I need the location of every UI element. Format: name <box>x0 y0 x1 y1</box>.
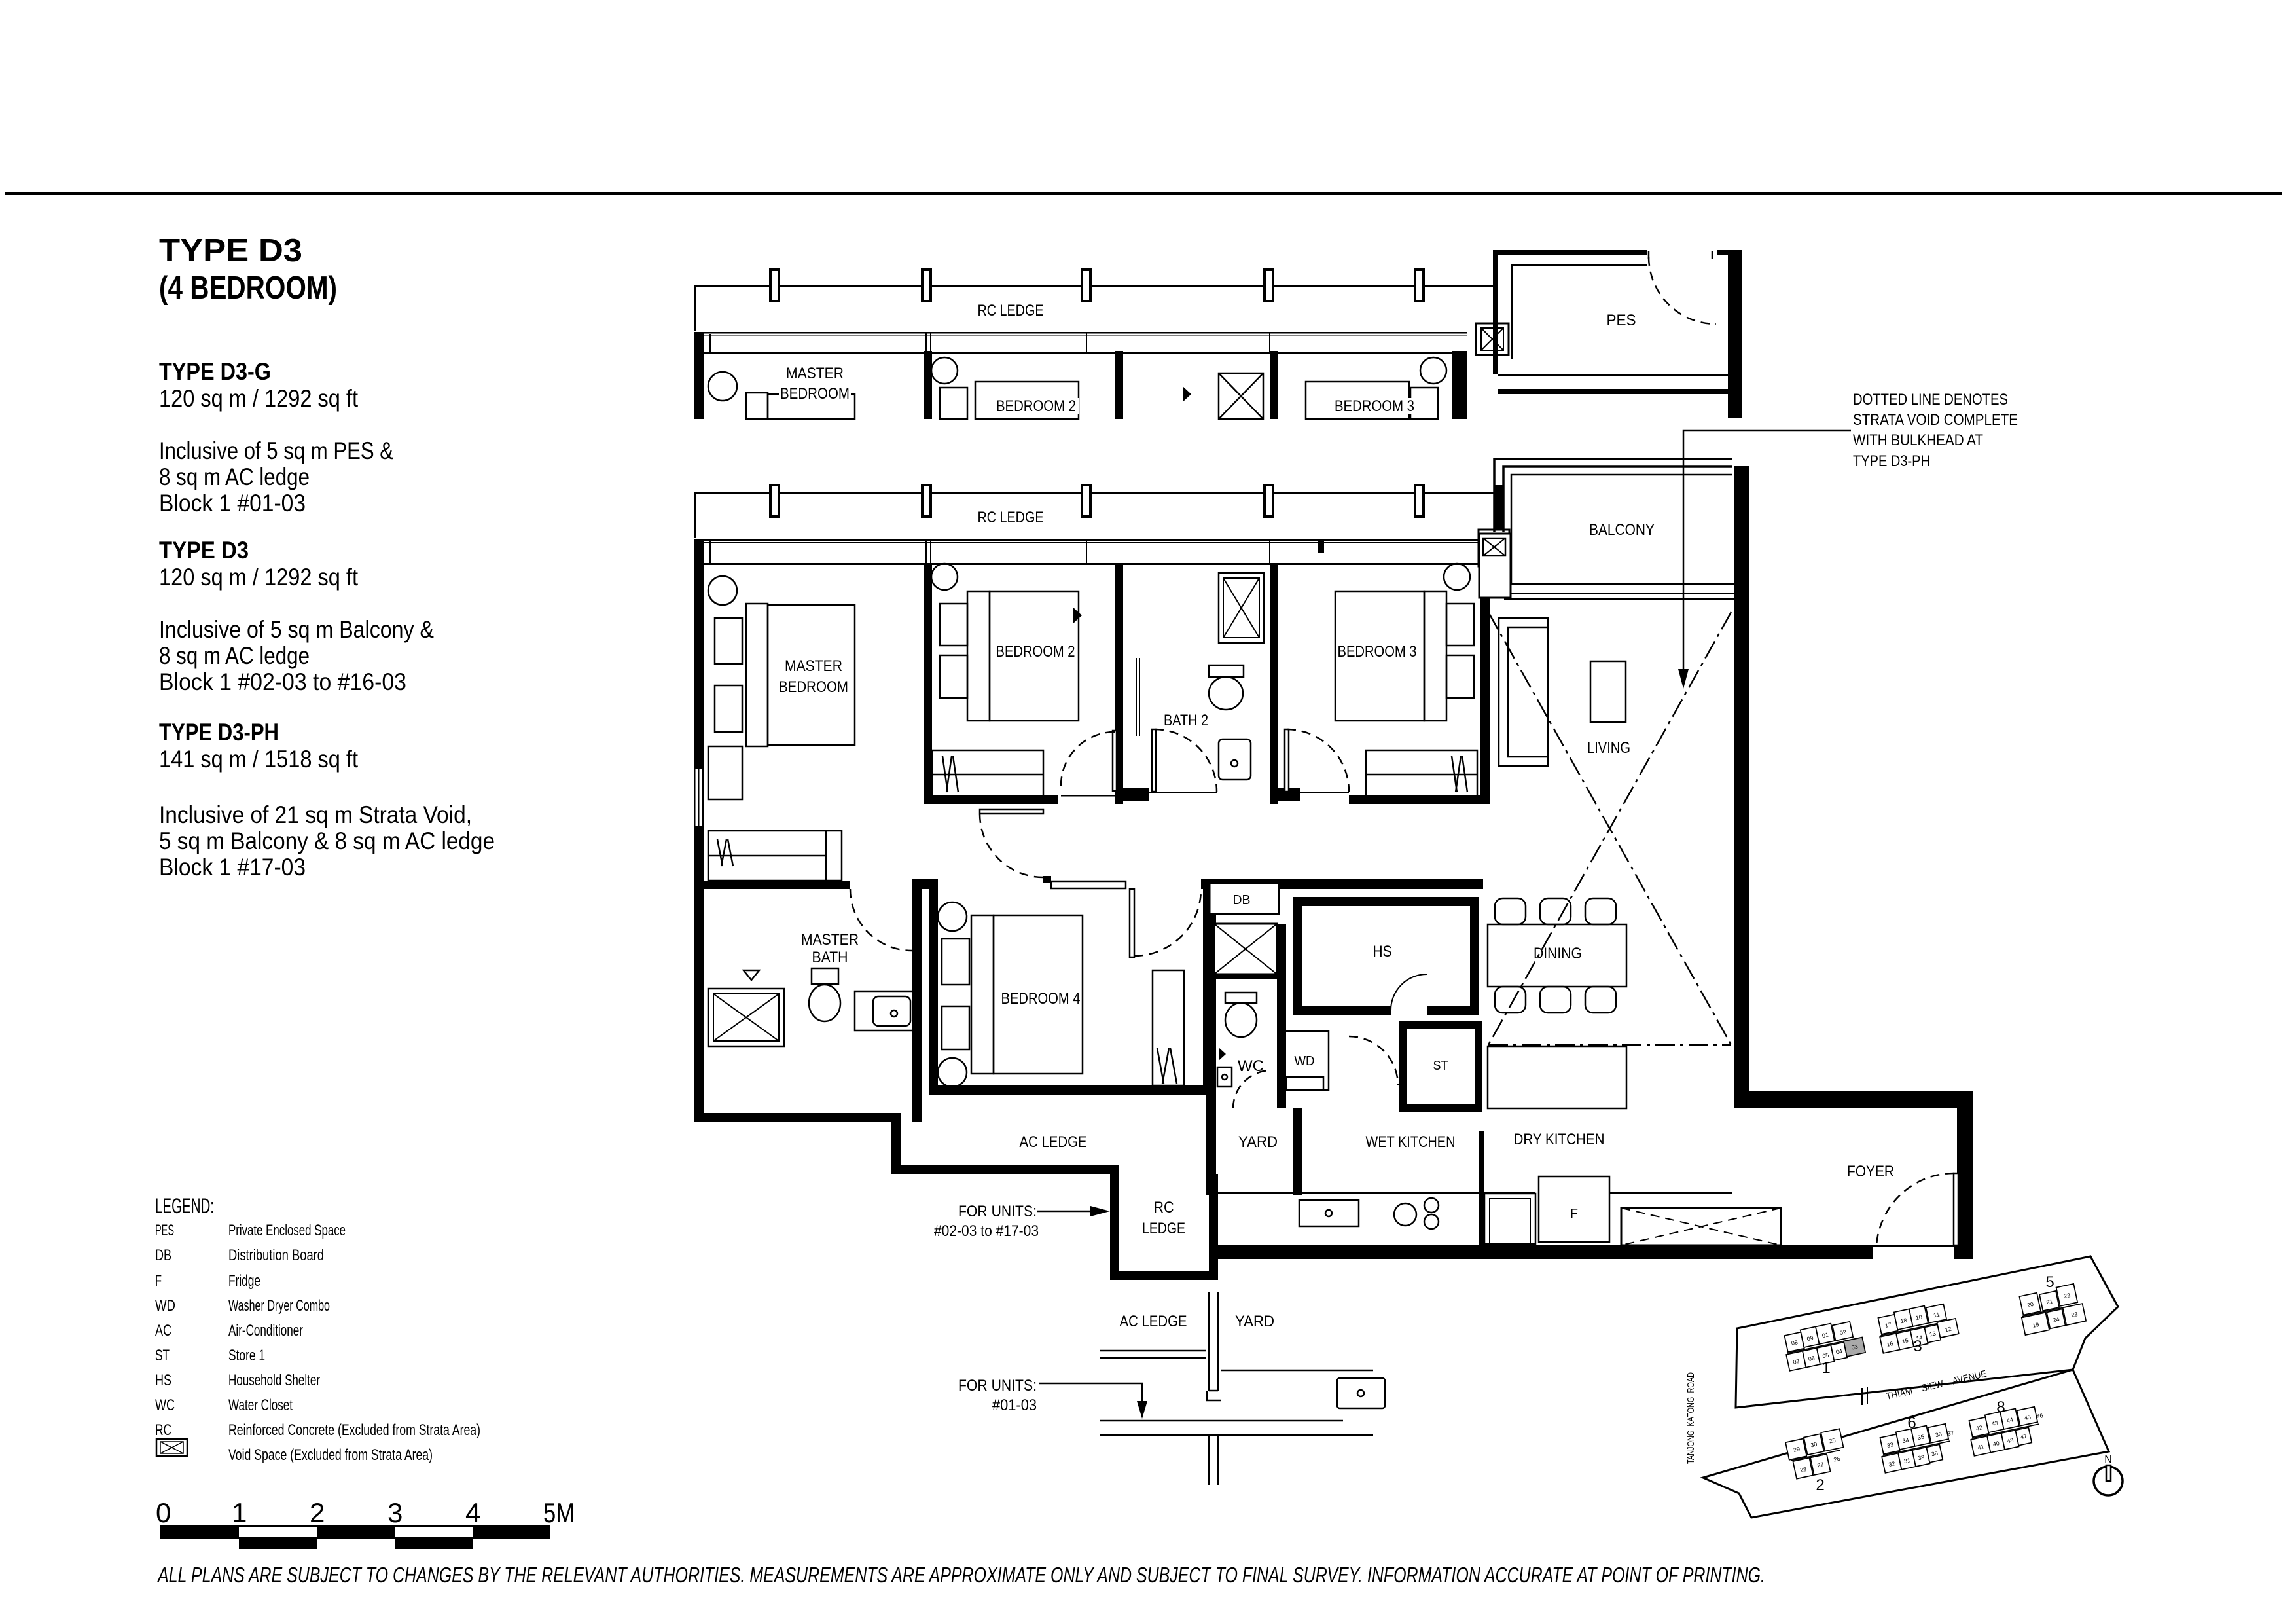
svg-text:12: 12 <box>1945 1326 1952 1334</box>
svg-text:25: 25 <box>1829 1437 1837 1445</box>
svg-text:06: 06 <box>1808 1355 1816 1362</box>
svg-text:#02-03 to #17-03: #02-03 to #17-03 <box>934 1222 1039 1240</box>
svg-text:48: 48 <box>2007 1437 2015 1445</box>
svg-text:Inclusive of 5 sq m PES &: Inclusive of 5 sq m PES & <box>159 437 393 464</box>
svg-text:43: 43 <box>1991 1419 1999 1427</box>
svg-text:STRATA VOID COMPLETE: STRATA VOID COMPLETE <box>1853 411 2018 429</box>
svg-text:RC LEDGE: RC LEDGE <box>978 302 1044 319</box>
svg-text:WD: WD <box>155 1297 175 1315</box>
svg-text:17: 17 <box>1884 1321 1892 1329</box>
svg-text:MASTER: MASTER <box>785 657 842 675</box>
svg-text:DB: DB <box>1233 893 1251 907</box>
svg-text:Private Enclosed Space: Private Enclosed Space <box>228 1222 346 1239</box>
svg-text:WD: WD <box>1295 1054 1315 1068</box>
svg-text:MASTER: MASTER <box>801 931 859 949</box>
svg-text:21: 21 <box>2046 1298 2054 1305</box>
svg-text:24: 24 <box>2053 1316 2060 1324</box>
svg-text:TYPE D3-G: TYPE D3-G <box>159 358 271 385</box>
svg-text:BEDROOM 2: BEDROOM 2 <box>996 643 1075 661</box>
svg-text:37: 37 <box>1947 1429 1955 1437</box>
svg-text:09: 09 <box>1806 1334 1814 1342</box>
svg-text:03: 03 <box>1851 1343 1859 1351</box>
svg-text:BATH: BATH <box>812 949 848 966</box>
svg-text:DINING: DINING <box>1534 945 1582 962</box>
svg-text:46: 46 <box>2036 1412 2044 1420</box>
svg-text:FOR UNITS:: FOR UNITS: <box>958 1203 1037 1220</box>
svg-text:45: 45 <box>2024 1413 2032 1421</box>
svg-text:44: 44 <box>2006 1416 2014 1424</box>
svg-text:15: 15 <box>1901 1337 1909 1345</box>
svg-text:RC: RC <box>155 1421 171 1439</box>
svg-text:8 sq m AC ledge: 8 sq m AC ledge <box>159 642 310 669</box>
svg-text:33: 33 <box>1886 1441 1894 1449</box>
svg-text:FOYER: FOYER <box>1847 1163 1894 1180</box>
svg-text:(4 BEDROOM): (4 BEDROOM) <box>159 270 337 306</box>
svg-text:ALL PLANS ARE SUBJECT TO CHANG: ALL PLANS ARE SUBJECT TO CHANGES BY THE … <box>156 1563 1765 1587</box>
svg-text:HS: HS <box>1373 943 1392 960</box>
svg-text:TYPE D3-PH: TYPE D3-PH <box>1853 452 1930 470</box>
svg-text:18: 18 <box>1900 1317 1908 1324</box>
svg-text:BEDROOM: BEDROOM <box>780 385 850 403</box>
svg-text:22: 22 <box>2063 1292 2071 1300</box>
svg-text:MASTER: MASTER <box>786 365 844 382</box>
svg-text:3: 3 <box>1913 1338 1922 1355</box>
svg-text:30: 30 <box>1810 1441 1818 1449</box>
svg-text:40: 40 <box>1992 1440 2000 1448</box>
svg-text:6: 6 <box>1907 1414 1916 1432</box>
svg-text:34: 34 <box>1902 1436 1910 1444</box>
svg-text:Block 1 #01-03: Block 1 #01-03 <box>159 490 306 517</box>
svg-text:BEDROOM 4: BEDROOM 4 <box>1001 990 1081 1008</box>
svg-text:Fridge: Fridge <box>228 1272 260 1290</box>
svg-text:120 sq m / 1292 sq ft: 120 sq m / 1292 sq ft <box>159 385 359 412</box>
svg-text:Distribution Board: Distribution Board <box>228 1247 324 1264</box>
svg-text:BALCONY: BALCONY <box>1589 521 1655 539</box>
svg-text:26: 26 <box>1833 1455 1841 1463</box>
svg-text:5M: 5M <box>543 1497 575 1528</box>
svg-text:TYPE D3: TYPE D3 <box>159 537 249 564</box>
svg-text:Inclusive of 5 sq m Balcony &: Inclusive of 5 sq m Balcony & <box>159 616 434 643</box>
svg-text:#01-03: #01-03 <box>992 1396 1037 1414</box>
svg-text:38: 38 <box>1931 1450 1939 1457</box>
svg-text:5 sq m Balcony & 8 sq m AC led: 5 sq m Balcony & 8 sq m AC ledge <box>159 828 495 854</box>
svg-text:BATH 2: BATH 2 <box>1164 712 1208 729</box>
svg-text:Void Space (Excluded from Stra: Void Space (Excluded from Strata Area) <box>228 1446 433 1464</box>
svg-text:36: 36 <box>1935 1431 1943 1438</box>
svg-text:TYPE D3-PH: TYPE D3-PH <box>159 719 279 746</box>
svg-text:0: 0 <box>156 1497 171 1528</box>
svg-text:Store 1: Store 1 <box>228 1347 265 1364</box>
svg-text:41: 41 <box>1977 1443 1985 1451</box>
svg-text:WC: WC <box>155 1396 175 1414</box>
svg-text:20: 20 <box>2026 1301 2034 1309</box>
svg-text:39: 39 <box>1918 1454 1926 1462</box>
svg-text:WITH BULKHEAD AT: WITH BULKHEAD AT <box>1853 431 1983 449</box>
svg-text:ST: ST <box>1433 1059 1448 1073</box>
svg-text:DB: DB <box>155 1247 171 1264</box>
svg-text:Reinforced Concrete (Excluded: Reinforced Concrete (Excluded from Strat… <box>228 1421 480 1439</box>
svg-text:8: 8 <box>1996 1398 2005 1416</box>
svg-text:05: 05 <box>1822 1352 1830 1360</box>
svg-text:1: 1 <box>1821 1359 1830 1377</box>
svg-text:42: 42 <box>1975 1424 1983 1432</box>
svg-text:RC LEDGE: RC LEDGE <box>978 509 1044 526</box>
svg-text:PES: PES <box>155 1222 174 1239</box>
svg-text:Block 1 #02-03 to #16-03: Block 1 #02-03 to #16-03 <box>159 668 406 695</box>
svg-text:TANJONG KATONG ROAD: TANJONG KATONG ROAD <box>1685 1372 1696 1464</box>
svg-text:DOTTED LINE DENOTES: DOTTED LINE DENOTES <box>1853 391 2008 409</box>
svg-text:07: 07 <box>1793 1358 1801 1366</box>
svg-text:10: 10 <box>1915 1313 1923 1321</box>
svg-text:02: 02 <box>1839 1328 1847 1336</box>
svg-text:BEDROOM 2: BEDROOM 2 <box>996 397 1076 415</box>
svg-text:Air-Conditioner: Air-Conditioner <box>228 1322 303 1340</box>
svg-text:DRY KITCHEN: DRY KITCHEN <box>1514 1131 1605 1148</box>
svg-text:Household Shelter: Household Shelter <box>228 1372 320 1389</box>
svg-text:13: 13 <box>1929 1330 1937 1338</box>
svg-text:Washer Dryer Combo: Washer Dryer Combo <box>228 1297 330 1315</box>
svg-text:Block 1 #17-03: Block 1 #17-03 <box>159 854 306 881</box>
svg-text:FOR UNITS:: FOR UNITS: <box>958 1377 1037 1395</box>
svg-text:AC: AC <box>155 1322 171 1340</box>
svg-text:2: 2 <box>310 1497 325 1528</box>
svg-text:PES: PES <box>1607 312 1636 329</box>
svg-text:WET KITCHEN: WET KITCHEN <box>1366 1133 1456 1151</box>
svg-text:RC: RC <box>1154 1199 1174 1216</box>
svg-text:Inclusive of 21 sq m Strata Vo: Inclusive of 21 sq m Strata Void, <box>159 801 472 828</box>
svg-text:YARD: YARD <box>1238 1133 1278 1151</box>
svg-text:120 sq m / 1292 sq ft: 120 sq m / 1292 sq ft <box>159 564 359 591</box>
svg-text:5: 5 <box>2045 1273 2054 1291</box>
svg-text:HS: HS <box>155 1372 171 1389</box>
svg-text:47: 47 <box>2020 1432 2028 1440</box>
svg-text:BEDROOM 3: BEDROOM 3 <box>1335 397 1414 415</box>
svg-text:N: N <box>2104 1454 2112 1465</box>
svg-text:28: 28 <box>1799 1466 1807 1474</box>
svg-text:BEDROOM 3: BEDROOM 3 <box>1338 643 1417 661</box>
svg-text:08: 08 <box>1791 1339 1799 1347</box>
svg-text:32: 32 <box>1888 1460 1896 1468</box>
svg-text:4: 4 <box>465 1497 480 1528</box>
svg-text:LEGEND:: LEGEND: <box>155 1194 214 1218</box>
svg-text:F: F <box>155 1272 162 1290</box>
svg-text:31: 31 <box>1903 1457 1911 1465</box>
svg-text:19: 19 <box>2032 1321 2039 1329</box>
svg-text:TYPE D3: TYPE D3 <box>159 233 302 268</box>
svg-text:1: 1 <box>232 1497 247 1528</box>
svg-text:23: 23 <box>2071 1311 2079 1319</box>
svg-text:LEDGE: LEDGE <box>1142 1220 1185 1237</box>
svg-text:3: 3 <box>387 1497 403 1528</box>
svg-text:LIVING: LIVING <box>1587 739 1630 757</box>
svg-text:29: 29 <box>1793 1446 1801 1453</box>
svg-text:Water Closet: Water Closet <box>228 1396 293 1414</box>
svg-text:141 sq m / 1518 sq ft: 141 sq m / 1518 sq ft <box>159 746 359 773</box>
svg-text:01: 01 <box>1821 1331 1829 1339</box>
svg-text:27: 27 <box>1817 1461 1825 1469</box>
svg-text:35: 35 <box>1917 1433 1925 1441</box>
svg-text:F: F <box>1570 1207 1578 1221</box>
svg-text:16: 16 <box>1886 1340 1894 1348</box>
svg-text:8 sq m AC ledge: 8 sq m AC ledge <box>159 464 310 490</box>
svg-text:ST: ST <box>155 1347 170 1364</box>
svg-text:BEDROOM: BEDROOM <box>779 678 848 696</box>
svg-text:2: 2 <box>1816 1476 1824 1494</box>
svg-text:YARD: YARD <box>1235 1313 1274 1330</box>
svg-text:04: 04 <box>1835 1347 1843 1355</box>
svg-text:AC LEDGE: AC LEDGE <box>1020 1133 1087 1151</box>
svg-text:AC LEDGE: AC LEDGE <box>1120 1313 1187 1330</box>
